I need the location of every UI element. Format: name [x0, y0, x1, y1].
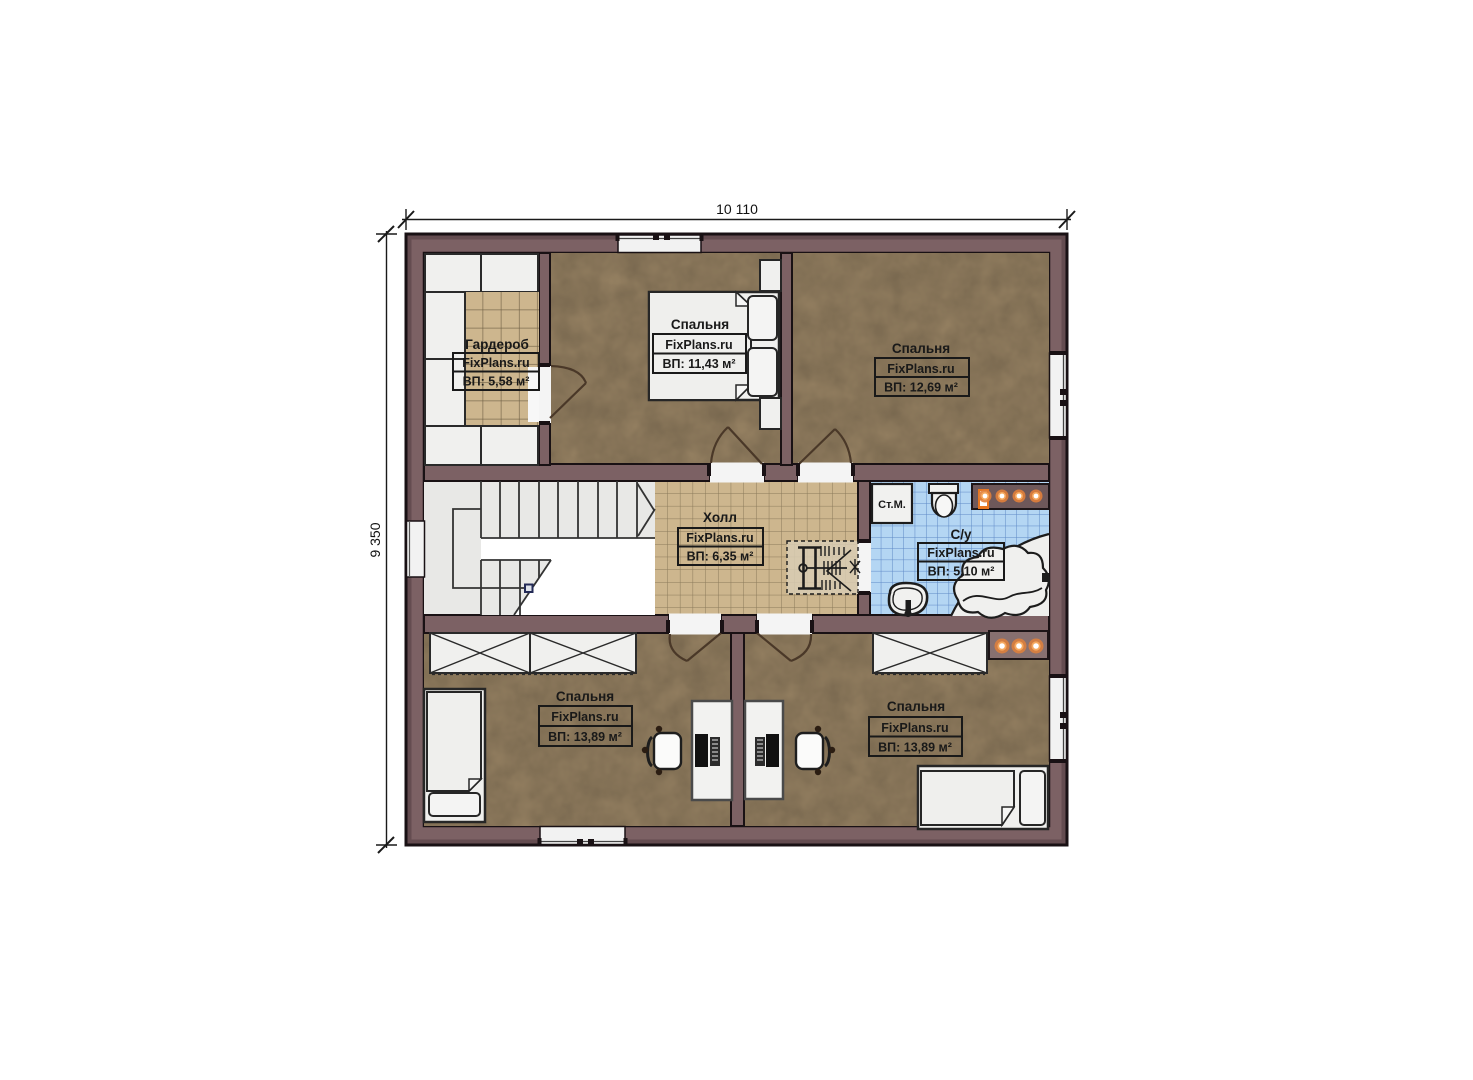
svg-text:С/у: С/у	[950, 527, 972, 542]
svg-text:10 110: 10 110	[716, 201, 758, 217]
svg-text:Холл: Холл	[703, 510, 737, 525]
svg-text:ВП: 13,89 м²: ВП: 13,89 м²	[878, 741, 952, 755]
svg-text:FixPlans.ru: FixPlans.ru	[881, 721, 948, 735]
svg-text:Ст.М.: Ст.М.	[878, 499, 906, 511]
svg-text:Спальня: Спальня	[887, 699, 945, 714]
svg-text:Спальня: Спальня	[892, 341, 950, 356]
svg-text:FixPlans.ru: FixPlans.ru	[551, 710, 618, 724]
svg-text:ВП: 13,89 м²: ВП: 13,89 м²	[548, 730, 622, 744]
svg-text:ВП: 5,58 м²: ВП: 5,58 м²	[463, 375, 530, 389]
svg-text:FixPlans.ru: FixPlans.ru	[462, 356, 529, 370]
svg-text:ВП: 5,10 м²: ВП: 5,10 м²	[928, 565, 995, 579]
svg-text:ВП: 6,35 м²: ВП: 6,35 м²	[687, 550, 754, 564]
svg-text:Гардероб: Гардероб	[465, 337, 529, 352]
svg-text:ВП: 11,43 м²: ВП: 11,43 м²	[662, 357, 735, 371]
svg-text:9 350: 9 350	[367, 522, 383, 557]
svg-text:FixPlans.ru: FixPlans.ru	[686, 531, 753, 545]
svg-text:ВП: 12,69 м²: ВП: 12,69 м²	[884, 381, 958, 395]
svg-text:Спальня: Спальня	[671, 317, 729, 332]
svg-text:FixPlans.ru: FixPlans.ru	[665, 338, 732, 352]
svg-text:Спальня: Спальня	[556, 689, 614, 704]
svg-text:FixPlans.ru: FixPlans.ru	[887, 362, 954, 376]
svg-text:FixPlans.ru: FixPlans.ru	[927, 546, 994, 560]
